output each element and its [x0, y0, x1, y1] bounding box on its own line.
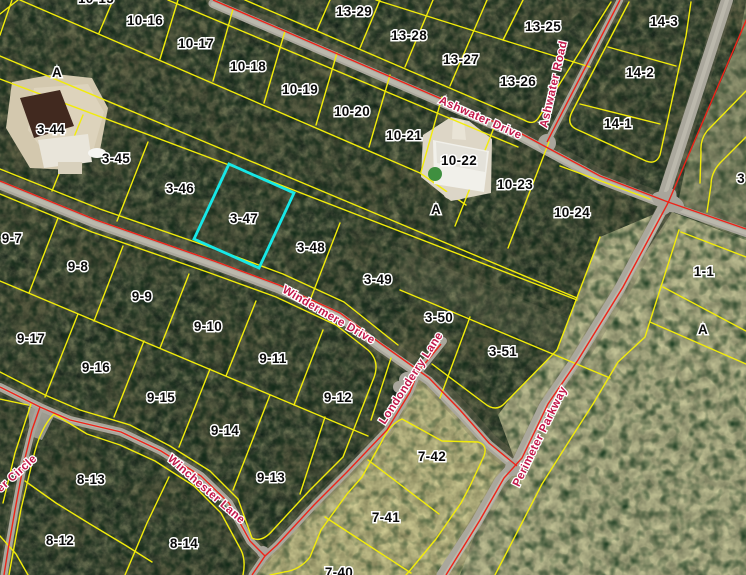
svg-text:10-22: 10-22: [441, 153, 477, 168]
svg-text:9-14: 9-14: [211, 423, 239, 438]
svg-text:1-1: 1-1: [694, 264, 715, 279]
svg-text:10-19: 10-19: [282, 82, 318, 97]
svg-text:7-40: 7-40: [325, 565, 353, 575]
svg-text:10-17: 10-17: [178, 36, 214, 51]
svg-text:13-29: 13-29: [336, 4, 372, 19]
svg-text:3-44: 3-44: [37, 122, 65, 137]
svg-text:9-7: 9-7: [2, 231, 22, 246]
svg-text:3-47: 3-47: [230, 211, 258, 226]
svg-text:3-50: 3-50: [425, 310, 453, 325]
svg-text:3-51: 3-51: [489, 344, 517, 359]
svg-text:A: A: [52, 65, 62, 80]
svg-text:3: 3: [737, 171, 745, 186]
svg-text:7-41: 7-41: [372, 510, 400, 525]
svg-text:3-46: 3-46: [166, 181, 194, 196]
svg-text:9-9: 9-9: [132, 289, 152, 304]
svg-text:9-8: 9-8: [68, 259, 89, 274]
svg-text:9-15: 9-15: [147, 390, 175, 405]
svg-text:9-13: 9-13: [257, 470, 285, 485]
svg-text:8-12: 8-12: [46, 533, 74, 548]
svg-text:A: A: [698, 322, 708, 337]
svg-text:8-14: 8-14: [170, 536, 198, 551]
svg-text:14-2: 14-2: [626, 65, 654, 80]
svg-text:9-10: 9-10: [194, 319, 222, 334]
svg-text:10-20: 10-20: [334, 104, 370, 119]
svg-text:10-15: 10-15: [78, 0, 114, 6]
svg-text:3-49: 3-49: [364, 272, 392, 287]
svg-text:3-48: 3-48: [297, 240, 325, 255]
svg-text:9-17: 9-17: [17, 331, 45, 346]
svg-text:9-11: 9-11: [259, 351, 287, 366]
svg-text:10-21: 10-21: [386, 128, 422, 143]
svg-text:13-25: 13-25: [525, 19, 561, 34]
svg-text:3-45: 3-45: [102, 151, 130, 166]
svg-text:9-12: 9-12: [324, 390, 352, 405]
svg-text:9-16: 9-16: [82, 360, 110, 375]
svg-text:10-16: 10-16: [127, 13, 163, 28]
svg-text:10-24: 10-24: [554, 205, 590, 220]
svg-text:7-42: 7-42: [418, 449, 446, 464]
svg-text:14-1: 14-1: [604, 116, 632, 131]
svg-text:10-23: 10-23: [497, 177, 533, 192]
svg-text:13-28: 13-28: [391, 28, 427, 43]
svg-text:8-13: 8-13: [77, 472, 105, 487]
svg-text:A: A: [431, 202, 441, 217]
svg-text:14-3: 14-3: [650, 14, 678, 29]
svg-text:13-26: 13-26: [500, 74, 536, 89]
svg-text:10-18: 10-18: [230, 59, 266, 74]
svg-text:13-27: 13-27: [443, 52, 479, 67]
